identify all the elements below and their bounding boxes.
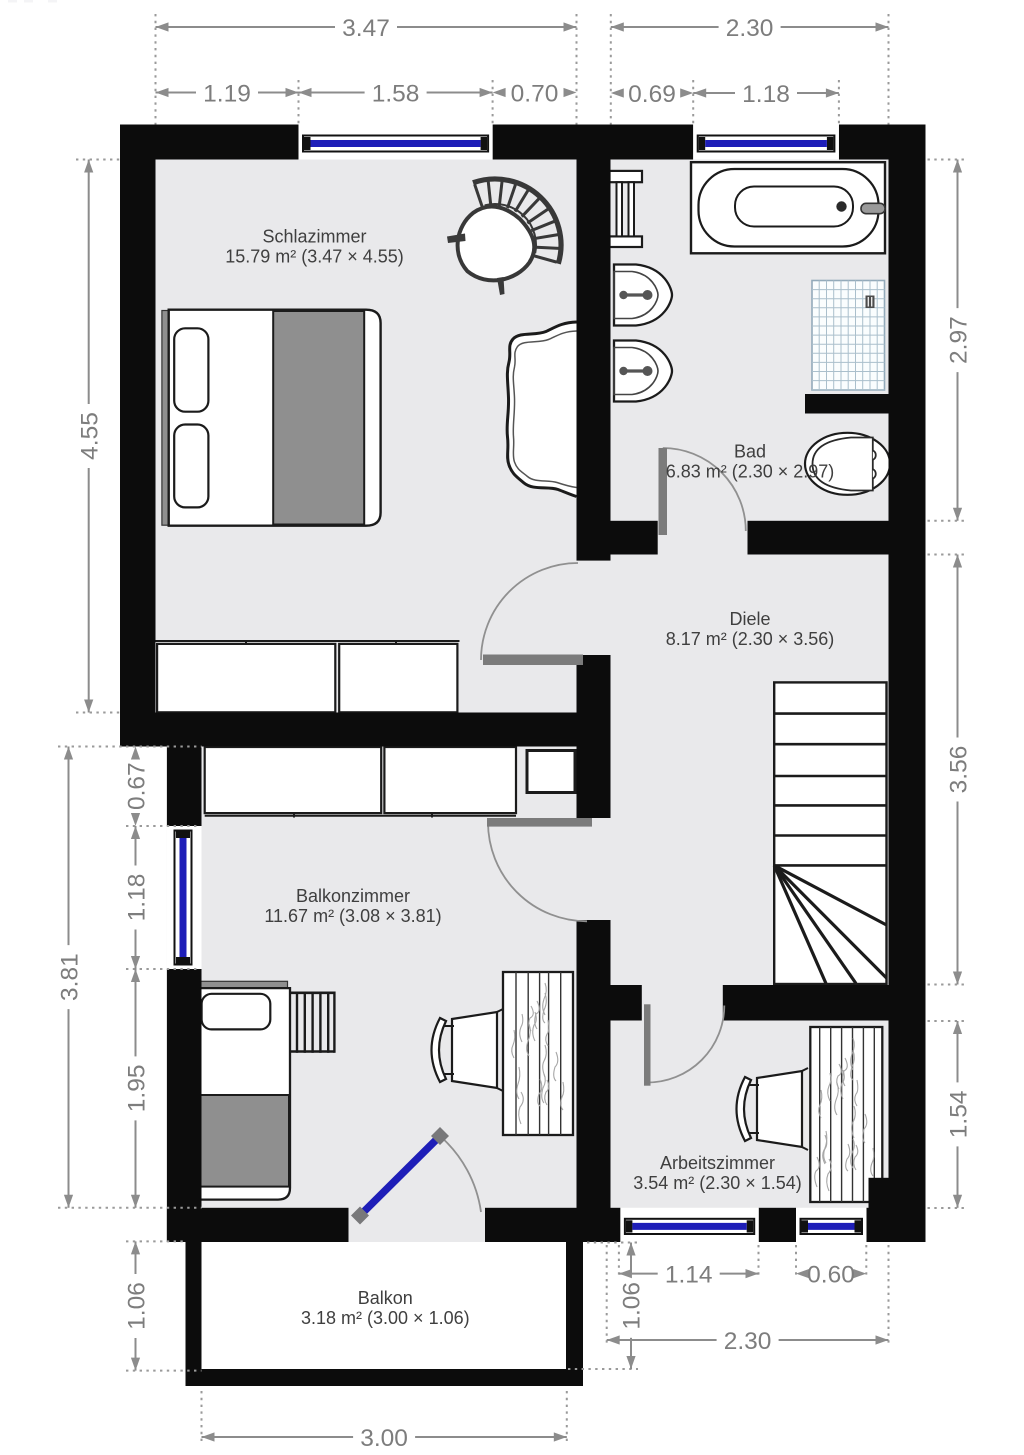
svg-text:Schlazimmer: Schlazimmer (262, 227, 366, 247)
svg-text:4.55: 4.55 (76, 412, 103, 460)
svg-text:3.54 m² (2.30 × 1.54): 3.54 m² (2.30 × 1.54) (633, 1173, 802, 1193)
svg-text:Bad: Bad (734, 442, 766, 462)
svg-text:1.18: 1.18 (742, 81, 790, 108)
svg-text:2.30: 2.30 (726, 15, 774, 42)
svg-text:Arbeitszimmer: Arbeitszimmer (660, 1153, 775, 1173)
svg-text:6.83 m² (2.30 × 2.97): 6.83 m² (2.30 × 2.97) (666, 461, 835, 481)
svg-text:1.06: 1.06 (619, 1282, 646, 1330)
svg-text:3.47: 3.47 (342, 15, 390, 42)
svg-text:11.67 m² (3.08 × 3.81): 11.67 m² (3.08 × 3.81) (264, 906, 441, 926)
svg-text:Balkonzimmer: Balkonzimmer (296, 886, 410, 906)
svg-text:3.56: 3.56 (945, 746, 972, 794)
svg-text:3.00: 3.00 (360, 1425, 408, 1450)
svg-text:1.18: 1.18 (123, 874, 150, 922)
svg-text:2.97: 2.97 (945, 316, 972, 364)
svg-text:Balkon: Balkon (358, 1288, 413, 1308)
svg-text:2.30: 2.30 (724, 1328, 772, 1355)
svg-text:8.17 m² (2.30 × 3.56): 8.17 m² (2.30 × 3.56) (666, 629, 835, 649)
svg-text:1.95: 1.95 (123, 1065, 150, 1113)
svg-text:15.79 m² (3.47 × 4.55): 15.79 m² (3.47 × 4.55) (225, 246, 404, 266)
svg-text:3.18 m² (3.00 × 1.06): 3.18 m² (3.00 × 1.06) (301, 1308, 470, 1328)
svg-text:1.06: 1.06 (123, 1282, 150, 1330)
svg-text:3.81: 3.81 (56, 953, 83, 1001)
svg-text:1.58: 1.58 (372, 80, 420, 107)
svg-text:0.67: 0.67 (123, 762, 150, 810)
svg-text:0.69: 0.69 (628, 81, 676, 108)
svg-text:1.19: 1.19 (203, 80, 251, 107)
svg-text:1.14: 1.14 (665, 1261, 713, 1288)
svg-text:Diele: Diele (729, 609, 770, 629)
svg-text:1.54: 1.54 (945, 1091, 972, 1139)
svg-text:0.70: 0.70 (511, 80, 559, 107)
svg-text:0.60: 0.60 (807, 1261, 855, 1288)
